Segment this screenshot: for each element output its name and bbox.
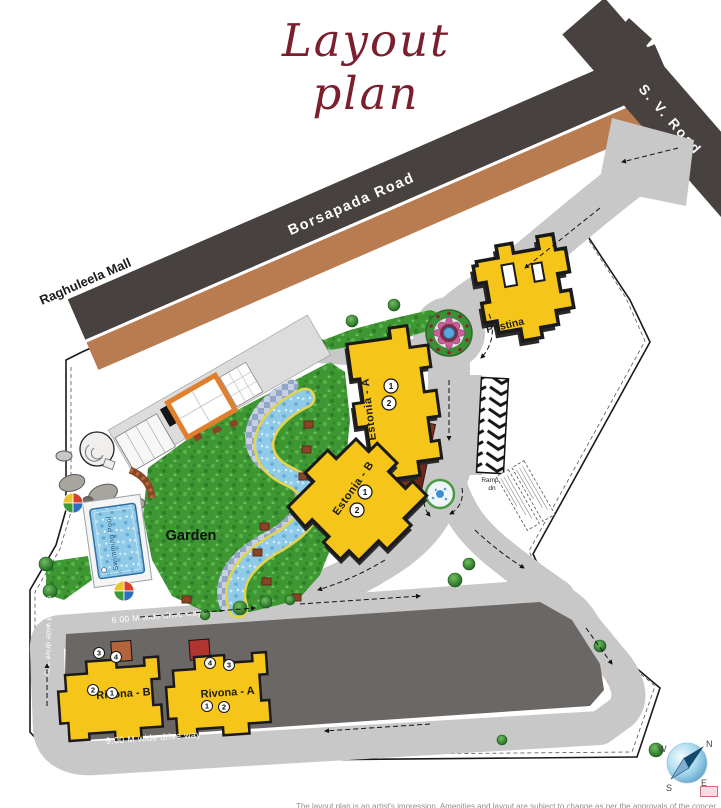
svg-text:1: 1	[110, 689, 114, 698]
layout-plan-page: Borsapada Road S. V. Road Raghuleela Mal…	[0, 0, 721, 808]
svg-text:2: 2	[355, 505, 360, 515]
svg-text:2: 2	[91, 686, 95, 695]
swimming-pool-area: Swimming Pool	[82, 494, 151, 587]
pool-umbrella-bottom	[114, 581, 134, 601]
svg-text:2: 2	[222, 703, 226, 712]
roundabout-garden	[426, 310, 472, 356]
svg-text:1: 1	[389, 381, 394, 391]
site-plan-svg: Borsapada Road S. V. Road Raghuleela Mal…	[0, 0, 721, 808]
page-title: Layout plan	[228, 14, 504, 120]
basement-ramp	[477, 377, 509, 473]
drive-way-left-label: 6.00 M wide drive way	[44, 596, 54, 677]
footer-disclaimer: The layout plan is an artist's impressio…	[296, 798, 716, 808]
footer-disclaimer-text: The layout plan is an artist's impressio…	[296, 802, 716, 808]
svg-text:2: 2	[387, 398, 392, 408]
garden-label: Garden	[166, 528, 217, 544]
compass-n: N	[706, 739, 713, 749]
ramp-label-1: Ramp	[481, 477, 499, 484]
compass-rose: N W S E	[658, 739, 713, 793]
svg-text:3: 3	[227, 661, 231, 670]
svg-text:1: 1	[205, 702, 209, 711]
pool-umbrella-top	[63, 493, 83, 513]
corner-logo-chip	[700, 786, 718, 797]
pool-ladder	[101, 567, 107, 573]
fountain	[426, 480, 454, 508]
compass-w: W	[658, 744, 667, 754]
compass-s: S	[666, 783, 672, 793]
svg-text:3: 3	[97, 649, 101, 658]
svg-text:1: 1	[363, 487, 368, 497]
ramp-label-2: dn	[488, 485, 496, 492]
